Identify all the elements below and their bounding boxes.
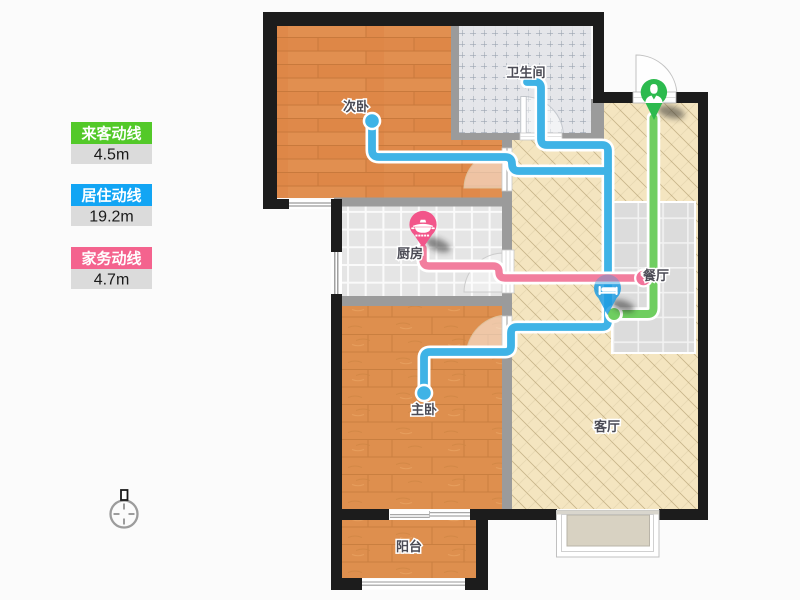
- svg-text:来客动线: 来客动线: [80, 125, 141, 143]
- svg-text:厨房: 厨房: [397, 246, 423, 261]
- svg-text:家务动线: 家务动线: [81, 250, 141, 268]
- svg-text:餐厅: 餐厅: [642, 268, 669, 283]
- svg-text:阳台: 阳台: [396, 539, 422, 554]
- svg-text:4.7m: 4.7m: [94, 272, 130, 289]
- svg-text:居住动线: 居住动线: [81, 187, 141, 205]
- svg-text:4.5m: 4.5m: [94, 147, 130, 164]
- svg-text:客厅: 客厅: [594, 419, 620, 434]
- svg-text:卫生间: 卫生间: [506, 65, 545, 80]
- svg-text:次卧: 次卧: [343, 99, 369, 114]
- svg-text:主卧: 主卧: [411, 402, 437, 417]
- svg-text:19.2m: 19.2m: [89, 209, 133, 226]
